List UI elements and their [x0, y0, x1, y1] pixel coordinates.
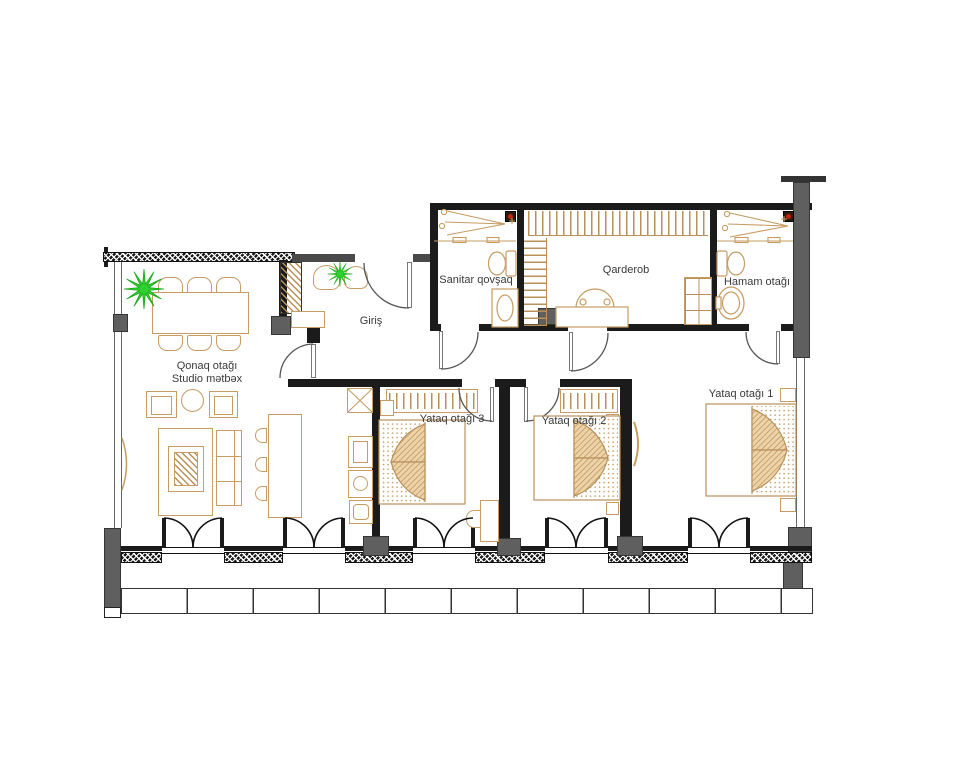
bed-bedroom1	[706, 404, 796, 496]
door-arc-wardrobe	[571, 333, 608, 371]
side-table	[181, 389, 204, 412]
room-label-living-line2: Studio mətbəx	[172, 373, 242, 386]
window-french-door-4	[547, 518, 606, 548]
nightstand	[780, 388, 796, 402]
wall-segment	[288, 379, 380, 387]
shower-bathroom-icon	[717, 211, 793, 242]
sill-hatch	[121, 552, 162, 563]
wall-segment	[430, 324, 441, 331]
balcony	[121, 588, 813, 614]
closet-bedroom3	[386, 389, 478, 413]
concrete-column	[113, 314, 128, 332]
closet-hangers	[563, 393, 615, 409]
wall-segment	[380, 379, 462, 387]
sink-bathroom-icon	[716, 287, 744, 319]
wall-segment	[607, 324, 712, 331]
sill-hatch	[750, 552, 812, 563]
concrete-column	[363, 536, 389, 556]
door-leaf-bedroom2	[524, 387, 528, 422]
window-jamb	[283, 518, 287, 548]
coffee-table-top	[174, 452, 198, 486]
vanity-wc-icon	[492, 289, 518, 327]
wall-segment	[620, 387, 632, 548]
window-french-door-3	[415, 518, 473, 548]
dining-table	[152, 292, 249, 334]
wall-segment	[430, 203, 812, 210]
wall-segment	[517, 210, 524, 326]
concrete-column	[793, 182, 810, 358]
room-label-bathroom: Hamam otağı	[724, 276, 790, 289]
entry-closet	[280, 262, 302, 314]
entry-bench	[291, 311, 325, 328]
room-label-bedroom2: Yataq otağı 2	[542, 415, 607, 428]
window-jamb	[545, 518, 549, 548]
window-sill	[413, 547, 475, 554]
entry-armchair	[313, 265, 340, 290]
wall-segment	[307, 326, 320, 343]
concrete-column	[271, 316, 291, 335]
shower-wc-icon	[434, 209, 516, 242]
window-jamb	[746, 518, 750, 548]
oven-inner	[353, 441, 368, 463]
window-french-door-1	[164, 518, 222, 548]
door-arc-entrance	[364, 263, 409, 308]
entry-armchair	[344, 266, 368, 289]
wall-segment	[224, 546, 283, 551]
room-label-bedroom3: Yataq otağı 3	[420, 413, 485, 426]
closet-hangers	[389, 393, 475, 409]
exterior-wall-hatched	[103, 252, 295, 262]
cooktop	[353, 476, 368, 491]
plan-linework	[0, 0, 953, 768]
nightstand	[606, 502, 619, 515]
wall-segment	[712, 324, 749, 331]
desk	[480, 500, 499, 542]
closet-bedroom2	[560, 389, 618, 413]
window-sill	[545, 547, 608, 554]
wall-segment	[560, 379, 632, 387]
dining-chair	[187, 335, 212, 351]
window-jamb	[413, 518, 417, 548]
dresser-mirror	[556, 289, 628, 327]
armchair	[209, 391, 238, 418]
dining-chair	[158, 277, 183, 293]
concrete-column	[497, 538, 521, 556]
window-jamb	[688, 518, 692, 548]
door-arc-living	[280, 344, 313, 378]
window-jamb	[220, 518, 224, 548]
window-sill	[283, 547, 345, 554]
wall-thin-right	[796, 358, 805, 528]
window-sill	[688, 547, 750, 554]
window-jamb	[341, 518, 345, 548]
concrete-column	[617, 536, 643, 556]
shelf-grid	[684, 277, 712, 325]
kitchen-cabinet-x	[347, 388, 373, 413]
kitchen-sink-basin	[353, 504, 369, 520]
extractor-fan-icon	[505, 211, 516, 222]
floor-plan: Qonaq otağı Studio mətbəx Giriş Sanitar …	[0, 0, 953, 768]
desk-chair	[466, 510, 481, 528]
door-leaf-bathroom	[776, 331, 780, 364]
wall-segment	[495, 379, 526, 387]
armchair	[146, 391, 177, 418]
room-label-entrance: Giriş	[360, 315, 383, 328]
door-arc-bathroom	[746, 332, 778, 364]
window-jamb	[604, 518, 608, 548]
door-leaf-bedroom3	[490, 387, 494, 422]
bar-stool	[255, 486, 267, 501]
wall-thin-left	[114, 262, 122, 528]
dining-chair	[158, 335, 183, 351]
dining-chair	[216, 335, 241, 351]
wall-segment	[750, 546, 812, 551]
window-french-door-5	[690, 518, 748, 548]
door-arc-wc	[441, 332, 478, 369]
nightstand	[380, 400, 394, 416]
tv-icon	[634, 422, 638, 466]
window-french-door-2	[285, 518, 343, 548]
room-label-living-line1: Qonaq otağı	[172, 360, 242, 373]
toilet-bathroom-icon	[717, 251, 745, 276]
room-label-wc: Sanitar qovşaq	[439, 274, 512, 287]
dining-chair	[187, 277, 212, 293]
dining-chair	[216, 277, 241, 293]
wardrobe-rail	[528, 211, 708, 236]
radiator-icon	[122, 438, 127, 490]
balcony-end-tile	[104, 607, 121, 618]
nightstand	[780, 498, 796, 512]
wall-segment	[372, 387, 380, 548]
door-leaf-living	[311, 344, 316, 378]
window-jamb	[162, 518, 166, 548]
sofa	[216, 430, 242, 506]
door-leaf-wardrobe	[569, 332, 573, 371]
bar-stool	[255, 457, 267, 472]
nightstand	[606, 414, 619, 427]
bed-bedroom2	[534, 416, 620, 500]
window-sill	[162, 547, 224, 554]
wall-segment	[121, 546, 162, 551]
bar-stool	[255, 428, 267, 443]
room-label-living: Qonaq otağı Studio mətbəx	[172, 360, 242, 386]
concrete-column	[104, 528, 121, 608]
room-label-wardrobe: Qarderob	[603, 264, 649, 277]
toilet-wc-icon	[489, 251, 517, 276]
extractor-fan-icon	[783, 211, 794, 222]
bed-bedroom3	[379, 420, 465, 504]
room-label-bedroom1: Yataq otağı 1	[709, 388, 774, 401]
sill-hatch	[224, 552, 283, 563]
wall-segment	[430, 203, 438, 330]
wall-segment	[499, 387, 510, 548]
wardrobe-rail	[524, 238, 547, 326]
wall-segment	[292, 254, 355, 262]
kitchen-island	[268, 414, 302, 518]
door-leaf-entrance	[407, 262, 412, 308]
door-leaf-wc	[439, 331, 443, 369]
